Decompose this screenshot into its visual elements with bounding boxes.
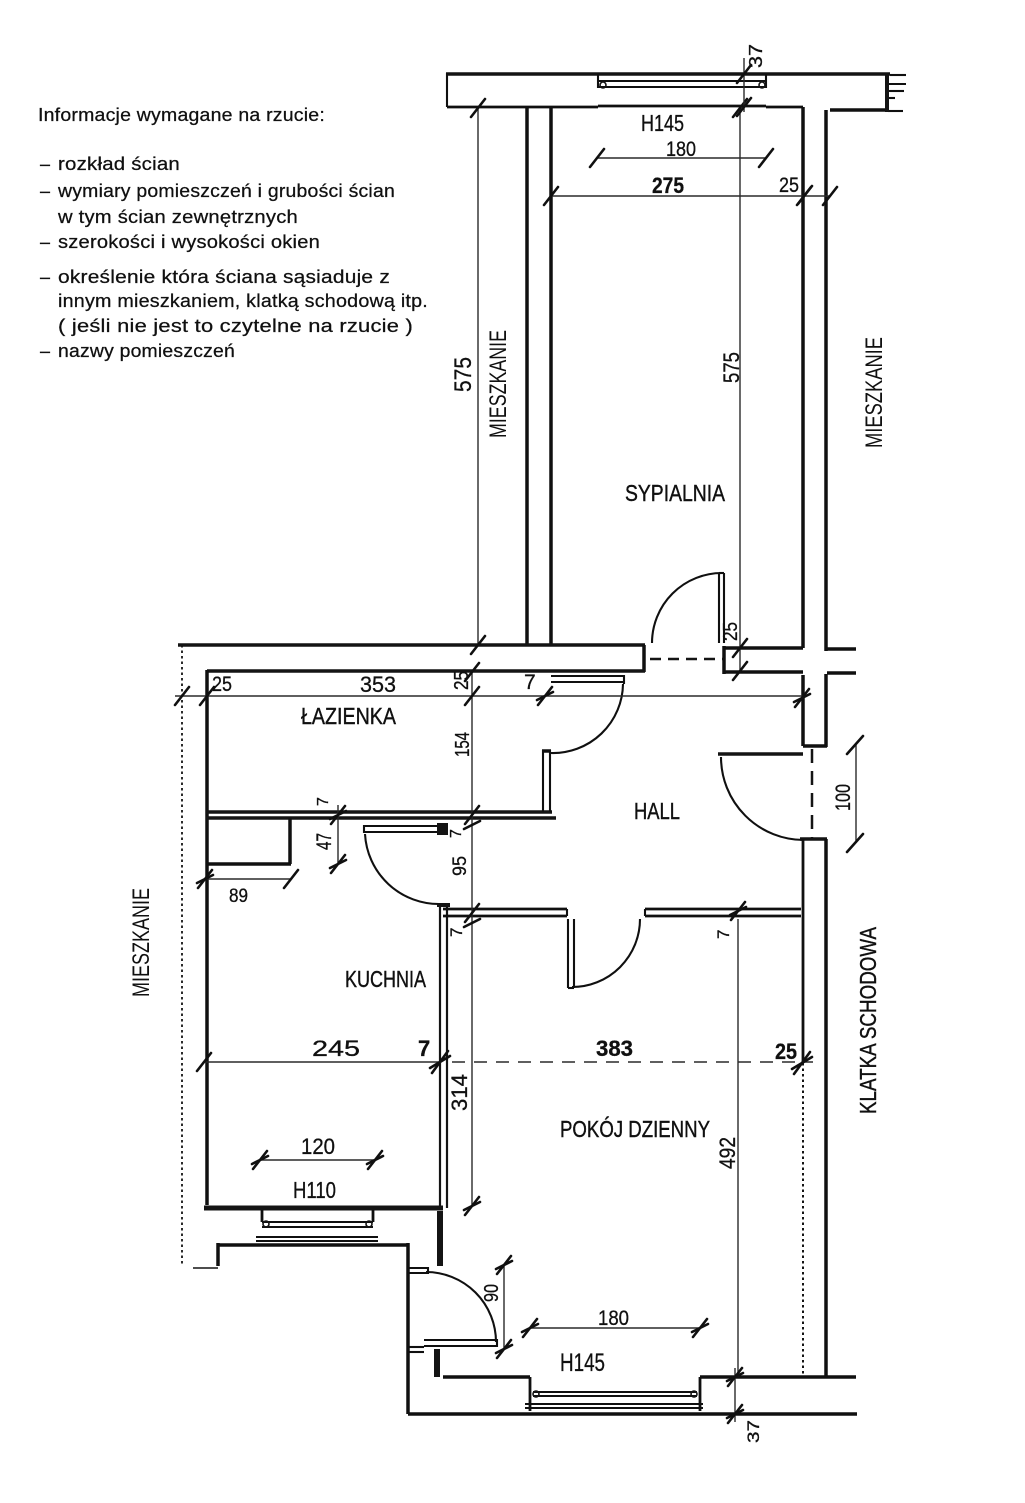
svg-text:575: 575 [719,352,744,383]
svg-text:245: 245 [312,1036,360,1061]
svg-text:w tym ścian zewnętrznych: w tym ścian zewnętrznych [57,207,298,227]
svg-text:37: 37 [746,44,766,68]
svg-text:25: 25 [212,673,232,696]
svg-text:H145: H145 [560,1349,605,1377]
svg-text:–: – [40,154,50,174]
svg-text:100: 100 [832,784,855,811]
svg-text:( jeśli nie jest to czytelne n: ( jeśli nie jest to czytelne na rzucie ) [58,316,413,336]
svg-text:180: 180 [598,1307,629,1330]
svg-text:rozkład ścian: rozkład ścian [58,154,180,174]
svg-text:–: – [40,232,50,252]
svg-text:95: 95 [450,856,471,876]
svg-text:7: 7 [418,1036,430,1061]
svg-text:SYPIALNIA: SYPIALNIA [625,480,726,506]
svg-text:–: – [40,267,50,287]
svg-text:25: 25 [720,622,742,641]
svg-text:ŁAZIENKA: ŁAZIENKA [301,703,397,729]
svg-text:7: 7 [447,928,466,937]
svg-text:575: 575 [450,357,477,392]
svg-text:275: 275 [652,173,684,198]
svg-text:7: 7 [448,829,465,838]
svg-text:POKÓJ DZIENNY: POKÓJ DZIENNY [560,1116,710,1142]
svg-text:7: 7 [315,797,332,806]
svg-text:180: 180 [666,138,696,161]
svg-text:KUCHNIA: KUCHNIA [345,966,427,992]
svg-text:innym mieszkaniem, klatką scho: innym mieszkaniem, klatką schodową itp. [58,291,428,311]
svg-text:wymiary pomieszczeń i grubości: wymiary pomieszczeń i grubości ścian [57,181,395,201]
svg-text:7: 7 [524,671,536,694]
svg-text:KLATKA SCHODOWA: KLATKA SCHODOWA [855,926,881,1114]
svg-text:H110: H110 [293,1177,336,1203]
svg-text:47: 47 [313,833,336,850]
svg-text:7: 7 [714,930,733,939]
svg-text:90: 90 [481,1284,503,1302]
svg-text:–: – [40,181,50,201]
svg-text:szerokości i wysokości okien: szerokości i wysokości okien [58,232,320,252]
svg-text:MIESZKANIE: MIESZKANIE [861,337,888,448]
svg-text:37: 37 [744,1420,763,1443]
svg-text:120: 120 [301,1134,335,1159]
svg-text:154: 154 [452,732,474,757]
svg-text:25: 25 [779,174,799,197]
svg-text:MIESZKANIE: MIESZKANIE [128,888,155,997]
svg-text:492: 492 [715,1137,740,1169]
svg-text:H145: H145 [641,110,684,136]
svg-text:HALL: HALL [634,798,680,824]
svg-text:383: 383 [596,1036,633,1061]
svg-text:Informacje wymagane na rzucie:: Informacje wymagane na rzucie: [38,105,325,125]
svg-text:–: – [40,341,50,361]
svg-text:MIESZKANIE: MIESZKANIE [485,330,512,438]
svg-text:określenie która ściana sąsiad: określenie która ściana sąsiaduje z [58,267,390,287]
svg-text:25: 25 [775,1039,797,1064]
svg-text:353: 353 [360,672,396,697]
svg-text:nazwy pomieszczeń: nazwy pomieszczeń [58,341,235,361]
svg-text:89: 89 [229,886,248,907]
svg-text:314: 314 [447,1074,472,1111]
